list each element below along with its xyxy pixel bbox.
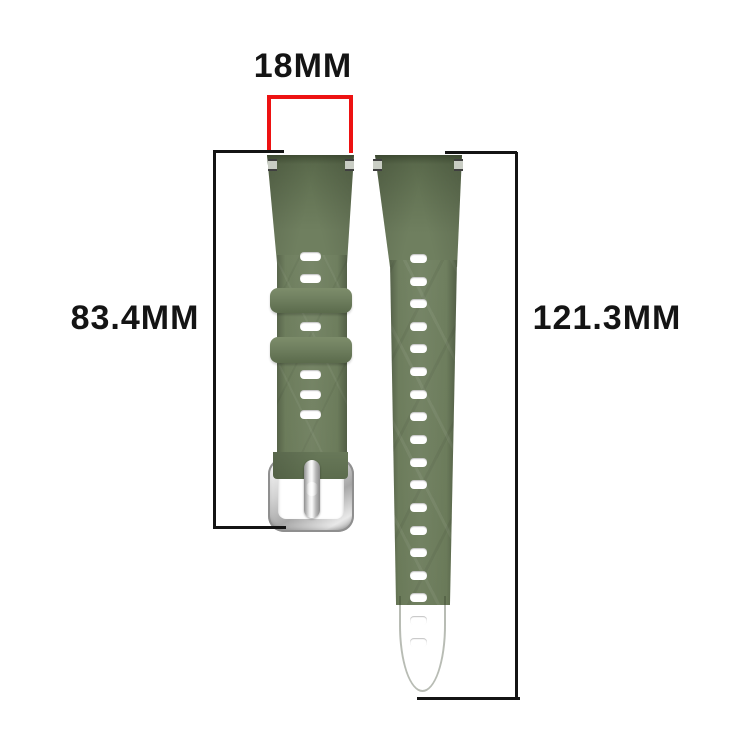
short-strap-measure-line [213, 150, 216, 529]
long-strap-measure-line [515, 152, 518, 700]
long-strap-measure-tick-bottom [417, 697, 520, 700]
size-diagram: 18MM 83.4MM 121.3MM [0, 0, 750, 750]
short-strap-measure-tick-top [213, 150, 284, 153]
long-strap-measure-tick-top [445, 151, 517, 154]
long-strap-length-label: 121.3MM [533, 300, 682, 337]
dimension-annotations: 18MM 83.4MM 121.3MM [0, 0, 750, 750]
short-strap-measure-tick-bottom [213, 526, 286, 529]
short-strap-length-label: 83.4MM [71, 300, 200, 337]
lug-width-label: 18MM [254, 48, 352, 85]
lug-width-bracket [267, 95, 353, 153]
